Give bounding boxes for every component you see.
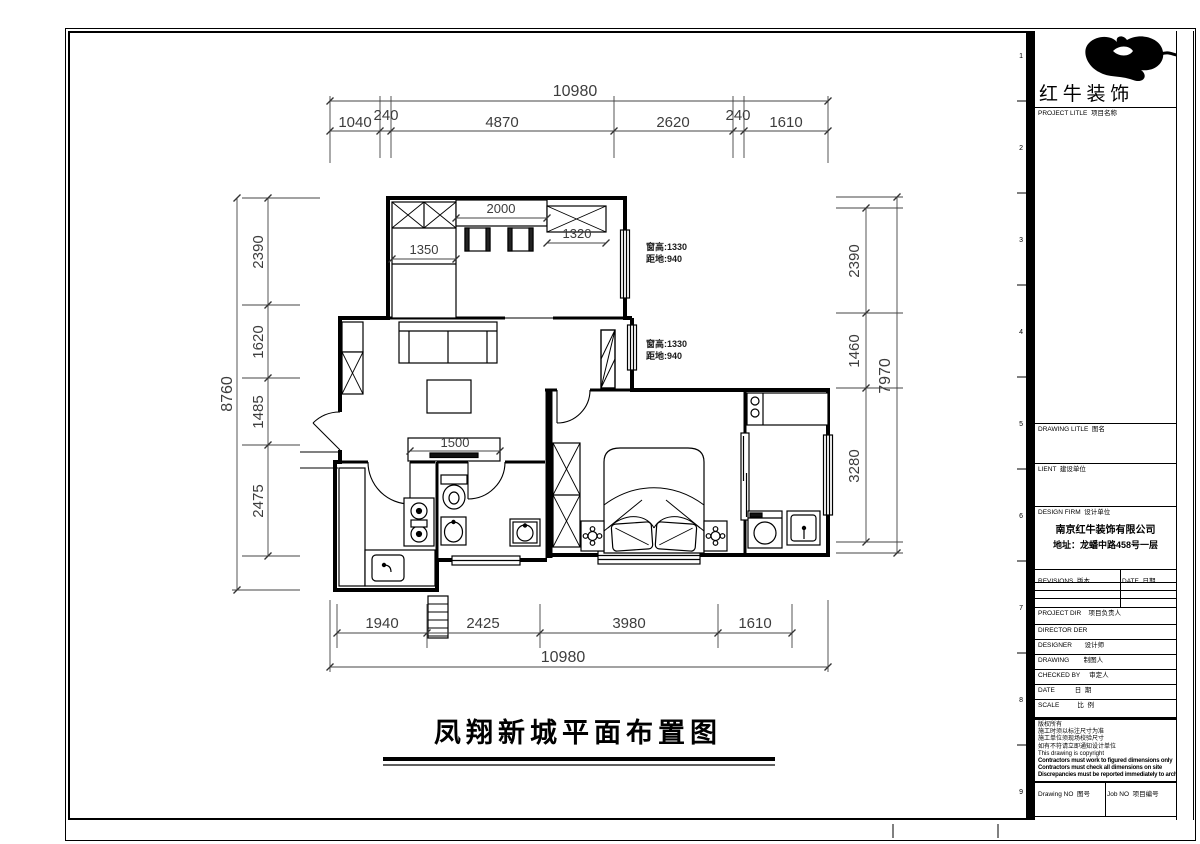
section-copyright: 版权所有 施工时须以标注尺寸为准 施工单位须现场校验尺寸 如有不符请立即通知设计… bbox=[1035, 718, 1176, 783]
balcony-counter bbox=[747, 393, 828, 425]
living-east-window bbox=[628, 325, 637, 370]
window-note-2-line1: 窗高:1330 bbox=[646, 338, 687, 349]
revision-row-empty-2 bbox=[1035, 591, 1176, 599]
brand-name: 红 牛 装 饰 bbox=[1035, 79, 1176, 106]
copyright-line-7: Contractors must check all dimensions on… bbox=[1038, 765, 1176, 772]
client-label: LIENT 建设单位 bbox=[1035, 464, 1176, 474]
brand-text: 红 牛 装 饰 bbox=[1039, 79, 1176, 106]
bathroom-south-window bbox=[452, 556, 520, 565]
entry-door bbox=[313, 412, 344, 450]
grid-ref-7: 7 bbox=[1019, 605, 1023, 612]
study-chair-2 bbox=[508, 228, 533, 251]
dim-right-seg3: 3280 bbox=[846, 449, 863, 482]
section-drawing-number: Drawing NO 图号Job NO 项目编号 bbox=[1035, 783, 1176, 817]
sofa bbox=[399, 322, 497, 363]
mop-sink bbox=[787, 511, 820, 545]
drawing-sheet: 10980 1040 240 4870 2620 240 1610 1940 2… bbox=[0, 0, 1200, 844]
grid-ref-4: 4 bbox=[1019, 329, 1023, 336]
toilet bbox=[441, 475, 467, 509]
fold-marks bbox=[893, 824, 998, 838]
logo-area: 红 牛 装 饰 bbox=[1035, 31, 1176, 108]
dim-left-seg2: 1620 bbox=[250, 325, 267, 358]
nightstand-right bbox=[704, 521, 727, 551]
revision-row-empty-3 bbox=[1035, 599, 1176, 608]
coffee-table bbox=[427, 380, 471, 413]
section-design-firm: DESIGN FIRM 设计单位 南京红牛装饰有限公司 地址：龙蟠中路458号一… bbox=[1035, 507, 1176, 570]
dim-bottom-seg4: 1610 bbox=[738, 615, 771, 632]
revisions-label: REVISIONS 版本 bbox=[1035, 576, 1119, 583]
furniture bbox=[339, 200, 828, 638]
study-wardrobe bbox=[392, 202, 456, 318]
grid-reference-numbers: 1 2 3 4 5 6 7 8 9 bbox=[1017, 53, 1026, 796]
designer-label: DESIGNER 设计师 bbox=[1035, 640, 1176, 650]
dim-top-overall: 10980 bbox=[553, 83, 598, 100]
shoe-cabinet bbox=[342, 322, 363, 394]
project-title-label: PROJECT LITLE 项目名称 bbox=[1035, 108, 1176, 118]
pillow-right bbox=[655, 522, 697, 552]
dim-top-seg2: 240 bbox=[373, 107, 398, 124]
plan-title: 凤翔新城平面布置图 bbox=[434, 717, 722, 748]
copyright-line-3: 施工单位须现场校验尺寸 bbox=[1038, 736, 1176, 743]
bathroom-door bbox=[468, 459, 505, 499]
entry-landing-steps bbox=[300, 452, 338, 468]
section-director: DIRECTOR DER bbox=[1035, 625, 1176, 640]
copyright-line-6: Contractors must work to figured dimensi… bbox=[1038, 758, 1176, 765]
bull-logo-icon bbox=[1043, 33, 1176, 81]
copyright-line-8: Discrepancies must be reported immediate… bbox=[1038, 772, 1176, 779]
revisions-column-divider bbox=[1120, 570, 1121, 582]
bedroom-door bbox=[557, 387, 590, 423]
window-notes: 窗高:1330 距地:940 窗高:1330 距地:940 bbox=[646, 241, 687, 361]
grid-ref-3: 3 bbox=[1019, 237, 1023, 244]
balcony-east-window bbox=[824, 435, 833, 515]
project-director-label: PROJECT DIR 项目负责人 bbox=[1035, 608, 1176, 618]
dim-bottom-seg1: 1940 bbox=[365, 615, 398, 632]
grid-ref-2: 2 bbox=[1019, 145, 1023, 152]
section-checked-by: CHECKED BY 审定人 bbox=[1035, 670, 1176, 685]
section-date: DATE 日 期 bbox=[1035, 685, 1176, 700]
bedroom-wardrobe bbox=[553, 443, 580, 547]
dim-left-seg4: 2475 bbox=[250, 484, 267, 517]
plan-title-underline-thick bbox=[383, 757, 775, 761]
section-client: LIENT 建设单位 bbox=[1035, 464, 1176, 507]
dim-right-seg1: 2390 bbox=[846, 244, 863, 277]
dim-top-seg3: 4870 bbox=[485, 114, 518, 131]
dim-tv-cabinet: 1500 bbox=[441, 435, 470, 450]
pillow-left bbox=[611, 522, 653, 552]
drawing-no-label: Drawing NO 图号 bbox=[1035, 789, 1104, 799]
dimension-labels: 10980 1040 240 4870 2620 240 1610 1940 2… bbox=[219, 83, 894, 666]
kitchen-door bbox=[368, 459, 410, 504]
director-label: DIRECTOR DER bbox=[1035, 625, 1176, 635]
company-name: 南京红牛装饰有限公司 bbox=[1035, 521, 1176, 536]
dim-top-seg5: 240 bbox=[725, 107, 750, 124]
grid-ref-6: 6 bbox=[1019, 513, 1023, 520]
dim-bottom-seg2: 2425 bbox=[466, 615, 499, 632]
dim-bottom-overall: 10980 bbox=[541, 649, 586, 666]
dim-left-seg1: 2390 bbox=[250, 235, 267, 268]
job-no-label: Job NO 项目编号 bbox=[1104, 789, 1159, 799]
dim-left-seg3: 1485 bbox=[250, 395, 267, 428]
revision-row-empty-1 bbox=[1035, 583, 1176, 591]
section-project-director: PROJECT DIR 项目负责人 bbox=[1035, 608, 1176, 625]
window-note-1-line1: 窗高:1330 bbox=[646, 241, 687, 252]
dimension-lines bbox=[232, 96, 903, 672]
structural-column-hatch bbox=[601, 330, 615, 388]
balcony-sliding-door bbox=[741, 433, 749, 520]
window-note-1-line2: 距地:940 bbox=[646, 253, 682, 264]
dim-closet: 1350 bbox=[410, 242, 439, 257]
grid-ref-9: 9 bbox=[1019, 789, 1023, 796]
grid-ref-1: 1 bbox=[1019, 53, 1023, 60]
drawing-no-divider bbox=[1105, 783, 1106, 816]
nightstand-left bbox=[581, 521, 604, 551]
dim-top-seg1: 1040 bbox=[338, 114, 371, 131]
study-east-window bbox=[621, 230, 630, 298]
dim-right-overall: 7970 bbox=[877, 358, 894, 394]
scale-label: SCALE 比 例 bbox=[1035, 700, 1176, 710]
section-designer: DESIGNER 设计师 bbox=[1035, 640, 1176, 655]
dim-left-overall: 8760 bbox=[219, 376, 236, 412]
drawing-title-label: DRAWING LITLE 图名 bbox=[1035, 424, 1176, 434]
section-project-title: PROJECT LITLE 项目名称 bbox=[1035, 108, 1176, 424]
drawing-by-label: DRAWING 制图人 bbox=[1035, 655, 1176, 665]
copyright-line-4: 如有不符请立即通知设计单位 bbox=[1038, 744, 1176, 751]
grid-ref-8: 8 bbox=[1019, 697, 1023, 704]
dim-desk: 2000 bbox=[487, 201, 516, 216]
company-address: 地址：龙蟠中路458号一层 bbox=[1035, 538, 1176, 551]
dim-right-seg2: 1460 bbox=[846, 334, 863, 367]
dim-top-seg6: 1610 bbox=[769, 114, 802, 131]
washing-machine bbox=[748, 511, 782, 548]
dim-bottom-seg3: 3980 bbox=[612, 615, 645, 632]
window-note-2-line2: 距地:940 bbox=[646, 350, 682, 361]
bath-basin bbox=[441, 517, 466, 545]
dim-top-seg4: 2620 bbox=[656, 114, 689, 131]
titleblock-right-column-line bbox=[1176, 31, 1177, 820]
section-revisions-header: REVISIONS 版本DATE 日期 bbox=[1035, 570, 1176, 583]
revision-date-label: DATE 日期 bbox=[1119, 576, 1155, 583]
tv-set bbox=[430, 453, 478, 458]
title-block: 红 牛 装 饰 PROJECT LITLE 项目名称 DRAWING LITLE… bbox=[1035, 31, 1193, 820]
hall-washbasin bbox=[510, 519, 540, 546]
section-scale: SCALE 比 例 bbox=[1035, 700, 1176, 718]
section-drawing-title: DRAWING LITLE 图名 bbox=[1035, 424, 1176, 464]
plan-title-group: 凤翔新城平面布置图 bbox=[383, 717, 775, 765]
grid-ref-5: 5 bbox=[1019, 421, 1023, 428]
study-chair-1 bbox=[465, 228, 490, 251]
kitchen-sink bbox=[372, 555, 404, 581]
copyright-line-5: This drawing is copyright bbox=[1038, 751, 1176, 758]
section-drawing-by: DRAWING 制图人 bbox=[1035, 655, 1176, 670]
date-label: DATE 日 期 bbox=[1035, 685, 1176, 695]
vent-shaft bbox=[428, 596, 448, 638]
dim-cabinet: 1320 bbox=[563, 226, 592, 241]
design-firm-label: DESIGN FIRM 设计单位 bbox=[1035, 507, 1176, 517]
floor-plan-drawing: 10980 1040 240 4870 2620 240 1610 1940 2… bbox=[0, 0, 1200, 844]
gas-stove bbox=[404, 498, 434, 546]
checked-by-label: CHECKED BY 审定人 bbox=[1035, 670, 1176, 680]
